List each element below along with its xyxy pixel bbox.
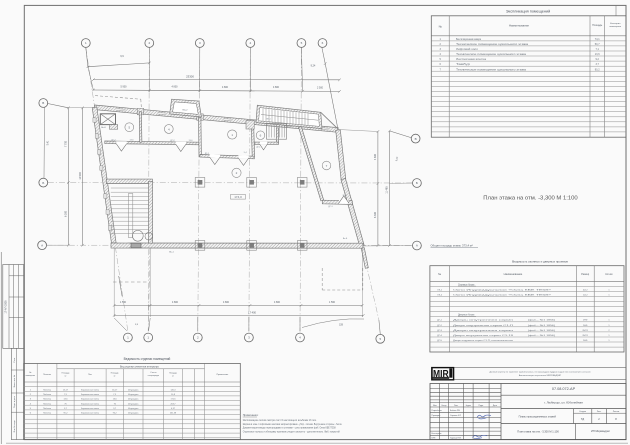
svg-text:Дверь внутренняя серия: Дверь внутренняя серия — [453, 320, 515, 322]
svg-text:(фаб.– №1 1856): (фаб.– №1 1856) — [528, 334, 555, 337]
svg-text:Вентиляционная камера: Вентиляционная камера — [456, 38, 482, 41]
svg-text:Экспликация помещений: Экспликация помещений — [506, 10, 550, 14]
svg-text:13 900: 13 900 — [79, 172, 82, 180]
svg-text:11 485: 11 485 — [386, 186, 389, 194]
svg-text:2НФ: 2НФ — [583, 319, 588, 322]
svg-text:(фаб.– №1 1856): (фаб.– №1 1856) — [528, 324, 555, 327]
svg-text:Подп.: Подп. — [478, 405, 483, 407]
svg-text:Данный чертеж не заменяет ориг: Данный чертеж не заменяет оригинальных, … — [490, 370, 592, 373]
svg-text:4 800: 4 800 — [223, 301, 230, 304]
svg-text:Керамическая плитка: Керамическая плитка — [81, 394, 99, 396]
svg-text:Категория: Категория — [610, 23, 621, 25]
svg-text:Штукатурка: Штукатурка — [128, 408, 139, 410]
svg-text:г. Люберцы, ул. Юбилейная: г. Люберцы, ул. Юбилейная — [544, 401, 583, 405]
svg-text:Кол.уч: Кол.уч — [441, 405, 446, 407]
svg-text:2 500: 2 500 — [317, 87, 324, 90]
svg-text:Побелка: Побелка — [43, 403, 52, 405]
svg-text:Дверь внутренняя серия С1: Дверь внутренняя серия С1.П — [453, 325, 514, 327]
svg-text:Штукатурка: Штукатурка — [128, 403, 139, 405]
svg-text:17,16: 17,16 — [170, 399, 176, 401]
svg-text:9,24: 9,24 — [311, 65, 316, 68]
svg-text:Горелый Г.Н.: Горелый Г.Н. — [450, 437, 462, 440]
svg-text:Дверь внутренняя серия: Дверь внутренняя серия — [453, 330, 515, 332]
svg-text:07.08.072-АР: 07.08.072-АР — [552, 387, 576, 391]
svg-text:16,17: 16,17 — [112, 389, 118, 391]
svg-text:Б: Б — [42, 181, 44, 185]
svg-text:4 800: 4 800 — [172, 301, 179, 304]
svg-text:Примечания:: Примечания: — [243, 413, 259, 417]
svg-text:4 800: 4 800 — [273, 86, 280, 89]
svg-text:Стадия: Стадия — [579, 411, 586, 413]
svg-text:Ведомость отделки помещений: Ведомость отделки помещений — [124, 357, 171, 361]
svg-text:помещения: помещения — [25, 375, 35, 377]
svg-text:ОК-2: ОК-2 — [437, 294, 443, 296]
svg-text:Подп. и дата: Подп. и дата — [14, 395, 16, 408]
svg-text:Планы присоединяемых этажей: Планы присоединяемых этажей — [519, 415, 557, 418]
svg-text:Б: Б — [416, 181, 418, 185]
svg-text:Техническое помещение цокольно: Техническое помещение цокольного этажа — [456, 68, 527, 71]
svg-text:Разработал: Разработал — [432, 410, 442, 412]
svg-text:9,2: 9,2 — [595, 58, 599, 61]
svg-text:Дверь внутренняя серия С1: Дверь внутренняя серия С1.19 — [453, 335, 514, 337]
svg-text:Штукатурка: Штукатурка — [128, 389, 139, 391]
svg-text:Техническое помещение цокольно: Техническое помещение цокольного этажа — [456, 43, 529, 46]
svg-text:А: А — [41, 243, 43, 247]
svg-text:2НП1: 2НП1 — [582, 330, 588, 332]
svg-text:Побелка: Побелка — [43, 394, 52, 396]
svg-text:Согл.: Согл. — [14, 357, 16, 363]
svg-text:Проверил: Проверил — [432, 415, 441, 417]
svg-text:23300: 23300 — [186, 74, 194, 78]
svg-text:Керамическая плитка: Керамическая плитка — [81, 403, 99, 405]
svg-text:ИП Мирквадрат: ИП Мирквадрат — [591, 429, 611, 433]
svg-text:ДГ-2: ДГ-2 — [437, 325, 442, 327]
svg-text:4х12: 4х12 — [583, 289, 589, 291]
svg-text:Ведомость оконных и дверных пр: Ведомость оконных и дверных проемов — [512, 260, 568, 264]
svg-text:Ширина в зоне с лифтовыми шахт: Ширина в зоне с лифтовыми шахтами запрое… — [243, 423, 343, 426]
svg-text:6 300: 6 300 — [374, 211, 377, 218]
svg-text:Керамическая плитка: Керамическая плитка — [81, 408, 99, 410]
svg-text:2НФ: 2НФ — [583, 339, 588, 342]
svg-text:ДГ-1: ДГ-1 — [437, 320, 442, 322]
svg-text:ДГ-1: ДГ-1 — [257, 147, 261, 149]
svg-text:Лифтовой холл: Лифтовой холл — [456, 48, 479, 51]
svg-text:Отдельные полосы и облицовку п: Отдельные полосы и облицовку проемов сле… — [243, 430, 341, 433]
svg-text:Потолок: Потолок — [43, 374, 51, 376]
svg-text:Площадь: Площадь — [62, 373, 70, 375]
svg-text:Кол-во: Кол-во — [605, 274, 613, 276]
svg-text:Побелка: Побелка — [43, 389, 52, 391]
svg-text:Штукатурка: Штукатурка — [128, 399, 139, 401]
svg-text:Керамическая плитка: Керамическая плитка — [81, 413, 99, 415]
svg-text:Размер: Размер — [581, 274, 590, 276]
svg-text:ДГ-4: ДГ-4 — [437, 335, 442, 337]
svg-text:17-АП-2008: 17-АП-2008 — [5, 300, 8, 314]
svg-text:Лист: Лист — [454, 405, 458, 407]
svg-text:2НП1: 2НП1 — [582, 335, 588, 337]
svg-text:План этажа на отм. -3,300 М 1:: План этажа на отм. -3,300 М 1:100 — [517, 429, 559, 433]
svg-text:1 560: 1 560 — [329, 301, 336, 304]
svg-text:3,7: 3,7 — [595, 63, 599, 66]
svg-text:Листов: Листов — [613, 411, 620, 413]
svg-text:Экспликацию полов смотри лист: Экспликацию полов смотри лист 6 настояще… — [243, 420, 317, 422]
svg-text:(фаб.– №1 1856): (фаб.– №1 1856) — [528, 329, 555, 332]
svg-text:ДГ-5: ДГ-5 — [437, 340, 442, 342]
svg-text:Взам. инв. №: Взам. инв. № — [13, 374, 16, 387]
svg-text:7 700: 7 700 — [65, 140, 68, 147]
svg-text:Площадь: Площадь — [592, 25, 603, 27]
svg-text:Окно Индивидуальное «Окна: Окно Индивидуальное «Окна КБЕ ТЕ58» — [453, 294, 553, 296]
svg-text:145,3: 145,3 — [170, 389, 176, 391]
svg-text:4 800: 4 800 — [172, 86, 179, 89]
svg-text:Наименование: Наименование — [504, 272, 523, 276]
svg-text:В: В — [415, 137, 417, 141]
svg-text:1х12: 1х12 — [583, 294, 589, 296]
svg-text:Автоматизация чертежных МИРКВ: Автоматизация чертежных МИРКВАДРАТ — [519, 374, 562, 377]
svg-text:Примечание: Примечание — [217, 374, 229, 376]
svg-text:5,41: 5,41 — [47, 140, 49, 145]
svg-text:Тамбур: Тамбур — [456, 63, 471, 66]
svg-text:Вч-1: Вч-1 — [169, 251, 174, 253]
svg-text:А: А — [416, 244, 418, 248]
svg-text:№док: №док — [466, 404, 471, 407]
svg-text:Керамическая плитка: Керамическая плитка — [81, 399, 99, 401]
svg-text:Площадь: Площадь — [111, 373, 119, 375]
svg-text:Наименование: Наименование — [509, 24, 529, 28]
svg-text:203,7: 203,7 — [170, 403, 176, 405]
svg-text:Керамическая плитка: Керамическая плитка — [81, 389, 99, 391]
svg-text:74,1: 74,1 — [595, 38, 600, 41]
svg-text:Лестничная клетка: Лестничная клетка — [456, 58, 487, 61]
svg-text:4 800: 4 800 — [374, 153, 377, 160]
svg-text:Н.контроль: Н.контроль — [432, 433, 442, 435]
svg-text:Общая площадь этажа: 373,4 м²: Общая площадь этажа: 373,4 м² — [431, 243, 473, 247]
svg-text:50,7: 50,7 — [595, 43, 600, 46]
svg-text:17 400: 17 400 — [248, 310, 256, 314]
svg-text:6 300: 6 300 — [65, 210, 68, 217]
svg-text:Побелка: Побелка — [43, 399, 52, 401]
svg-text:В: В — [42, 101, 44, 105]
svg-text:Документация между перегородка: Документация между перегородками и стена… — [243, 427, 337, 430]
svg-text:Побелка: Побелка — [43, 413, 52, 415]
svg-text:Штукатурка: Штукатурка — [128, 394, 139, 396]
svg-text:Штукатурка: Штукатурка — [128, 413, 139, 415]
svg-text:помещения: помещения — [609, 26, 622, 28]
svg-text:Бабаян Р.В.: Бабаян Р.В. — [450, 410, 461, 412]
svg-text:5 900: 5 900 — [121, 85, 128, 88]
svg-text:Лист: Лист — [597, 411, 601, 413]
svg-text:Вч-6: Вч-6 — [101, 127, 106, 129]
svg-text:4 800: 4 800 — [222, 86, 229, 89]
svg-text:№: № — [439, 25, 442, 29]
svg-text:и перегородки: и перегородки — [148, 375, 159, 377]
svg-text:231,38: 231,38 — [170, 413, 177, 415]
svg-text:174,0: 174,0 — [234, 195, 242, 199]
svg-text:№: № — [438, 273, 441, 276]
svg-text:Площадь: Площадь — [169, 373, 177, 375]
svg-text:Мо-2: Мо-2 — [182, 110, 188, 112]
svg-text:ДГ-3: ДГ-3 — [437, 330, 442, 332]
svg-text:7,1: 7,1 — [595, 48, 599, 51]
svg-text:Техническое помещение цокольно: Техническое помещение цокольного этажа — [456, 53, 527, 56]
svg-text:(фаб.– №1 1856): (фаб.– №1 1856) — [528, 319, 555, 322]
svg-text:ТД: ТД — [581, 417, 584, 421]
svg-text:Вч-Б: Вч-Б — [343, 238, 348, 240]
svg-text:Стены: Стены — [150, 372, 157, 374]
svg-text:Дверь наружная серия С1.П: Дверь наружная серия С1.П, технологическ… — [453, 340, 514, 342]
svg-text:Побелка: Побелка — [43, 408, 52, 410]
svg-text:4 800: 4 800 — [274, 301, 281, 304]
svg-text:90,2: 90,2 — [595, 68, 600, 71]
svg-text:ОК-1: ОК-1 — [437, 289, 443, 291]
svg-text:2НФ: 2НФ — [583, 324, 588, 327]
svg-text:Инв. № подл.: Инв. № подл. — [13, 419, 16, 432]
svg-text:13,6: 13,6 — [595, 53, 600, 56]
svg-text:1 550: 1 550 — [120, 301, 127, 304]
svg-text:ГИП: ГИП — [432, 438, 436, 440]
svg-text:Вид отделки элементов интерьер: Вид отделки элементов интерьера — [120, 366, 159, 369]
svg-text:16,17: 16,17 — [63, 389, 69, 391]
svg-text:Сорокин И.Г.: Сорокин И.Г. — [450, 415, 462, 417]
svg-text:Окно Индивидуальное «Окна: Окно Индивидуальное «Окна КБЕ ТЕ58» — [453, 289, 553, 291]
svg-text:План этажа на отм. -3,300 М 1:: План этажа на отм. -3,300 М 1:100 — [483, 196, 578, 202]
